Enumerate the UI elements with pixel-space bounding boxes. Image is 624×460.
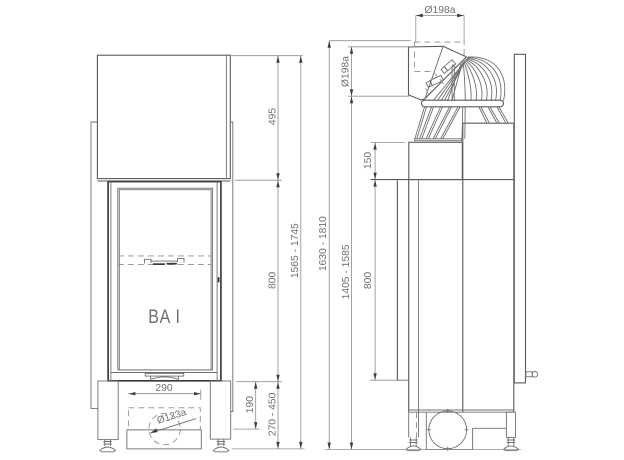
svg-text:1630 - 1810: 1630 - 1810 bbox=[318, 216, 329, 271]
svg-text:1565 - 1745: 1565 - 1745 bbox=[290, 223, 301, 278]
svg-text:Ø198a: Ø198a bbox=[341, 56, 352, 87]
svg-text:190: 190 bbox=[245, 396, 256, 413]
svg-text:1405 - 1585: 1405 - 1585 bbox=[341, 244, 352, 299]
svg-text:800: 800 bbox=[363, 272, 374, 289]
svg-text:BA I: BA I bbox=[148, 306, 181, 328]
svg-text:Ø198a: Ø198a bbox=[425, 5, 456, 16]
svg-text:290: 290 bbox=[155, 383, 172, 394]
svg-text:150: 150 bbox=[363, 152, 374, 169]
svg-text:270 - 450: 270 - 450 bbox=[267, 392, 278, 436]
svg-text:800: 800 bbox=[267, 272, 278, 289]
svg-text:495: 495 bbox=[267, 108, 278, 125]
